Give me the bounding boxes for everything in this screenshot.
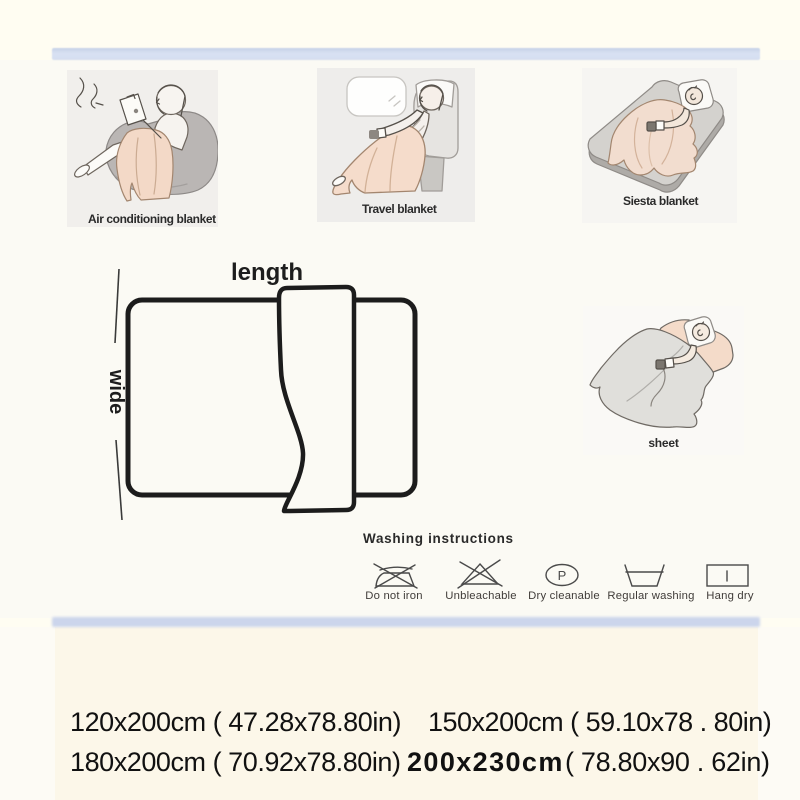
svg-text:P: P — [558, 568, 567, 583]
svg-text:wide: wide — [105, 369, 127, 414]
svg-text:length: length — [231, 259, 303, 286]
